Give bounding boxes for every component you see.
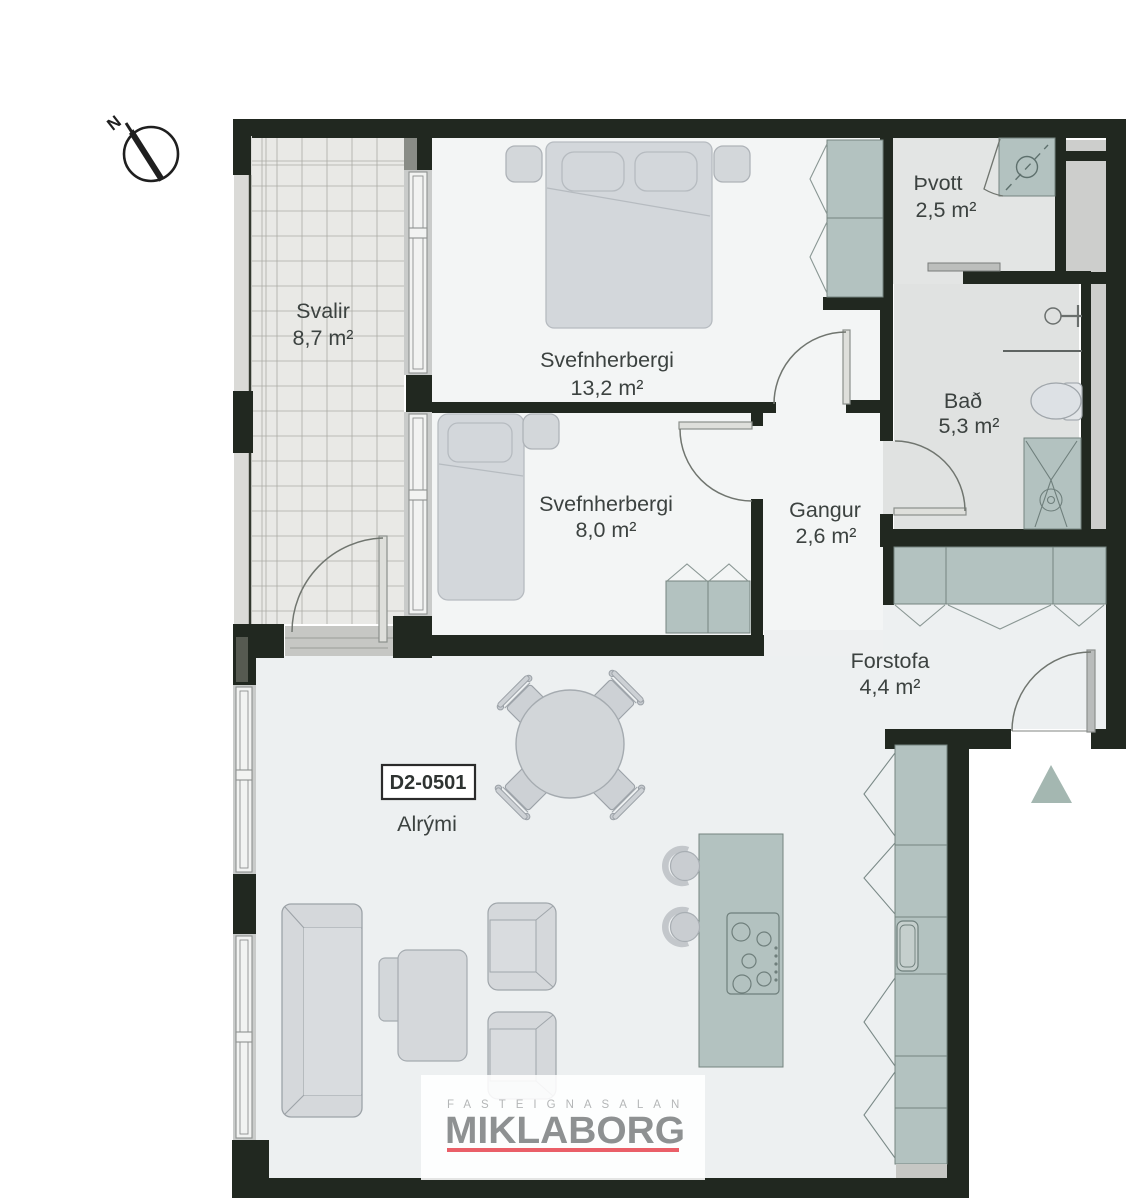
- svg-text:13,2 m²: 13,2 m²: [571, 376, 644, 400]
- svg-text:8,7 m²: 8,7 m²: [293, 326, 354, 350]
- svg-text:5,3 m²: 5,3 m²: [939, 414, 1000, 438]
- svg-text:Gangur: Gangur: [789, 498, 861, 522]
- svg-text:Svefnherbergi: Svefnherbergi: [539, 492, 673, 516]
- svg-text:Alrými: Alrými: [397, 812, 457, 836]
- svg-text:MIKLABORG: MIKLABORG: [445, 1110, 685, 1152]
- svg-text:Forstofa: Forstofa: [851, 649, 930, 673]
- svg-text:Svefnherbergi: Svefnherbergi: [540, 348, 674, 372]
- svg-text:Þvott: Þvott: [914, 171, 963, 195]
- svg-text:Svalir: Svalir: [296, 299, 350, 323]
- svg-text:8,0 m²: 8,0 m²: [576, 518, 637, 542]
- svg-text:Bað: Bað: [944, 389, 982, 413]
- svg-text:D2-0501: D2-0501: [390, 772, 467, 794]
- svg-text:2,5 m²: 2,5 m²: [916, 198, 977, 222]
- svg-text:4,4 m²: 4,4 m²: [860, 675, 921, 699]
- svg-text:2,6 m²: 2,6 m²: [796, 524, 857, 548]
